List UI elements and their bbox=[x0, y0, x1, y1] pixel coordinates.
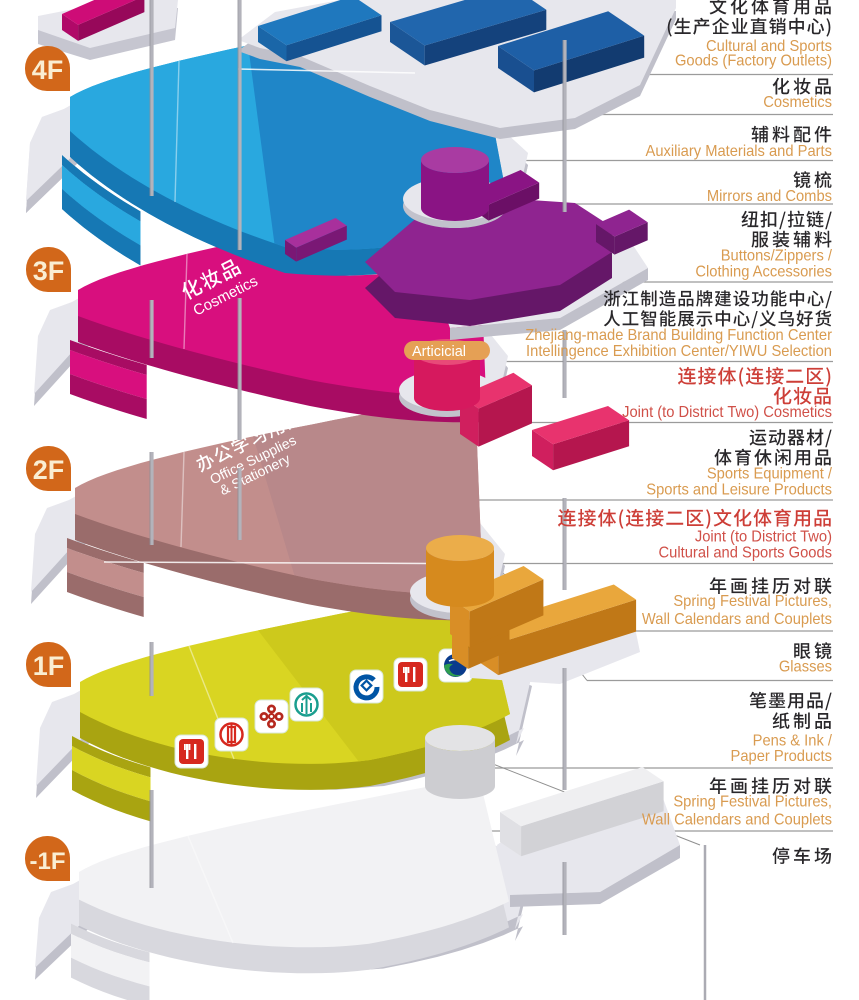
svg-text:Zhejiang-made Brand Building F: Zhejiang-made Brand Building Function Ce… bbox=[525, 327, 832, 344]
svg-text:Spring Festival Pictures,: Spring Festival Pictures, bbox=[673, 593, 832, 610]
svg-text:Intellingence Exhibition Cente: Intellingence Exhibition Center/YIWU Sel… bbox=[526, 343, 832, 360]
svg-text:Sports Equipment /: Sports Equipment / bbox=[707, 465, 833, 482]
svg-text:Articicial: Articicial bbox=[412, 344, 466, 360]
svg-text:Clothing Accessories: Clothing Accessories bbox=[695, 263, 832, 280]
svg-text:-1F: -1F bbox=[30, 848, 66, 875]
svg-text:2F: 2F bbox=[33, 455, 65, 485]
svg-text:Paper Products: Paper Products bbox=[731, 748, 833, 765]
svg-text:Spring Festival Pictures,: Spring Festival Pictures, bbox=[673, 793, 832, 810]
svg-text:1F: 1F bbox=[33, 651, 65, 681]
svg-text:4F: 4F bbox=[32, 55, 64, 85]
svg-text:Sports and Leisure Products: Sports and Leisure Products bbox=[646, 481, 832, 498]
svg-text:Cultural and Sports Goods: Cultural and Sports Goods bbox=[659, 544, 833, 561]
svg-text:Glasses: Glasses bbox=[779, 658, 833, 675]
svg-text:Joint (to District Two): Joint (to District Two) bbox=[695, 528, 832, 545]
svg-text:Goods (Factory Outlets): Goods (Factory Outlets) bbox=[675, 52, 832, 69]
svg-text:Joint (to District Two) Cosmet: Joint (to District Two) Cosmetics bbox=[622, 404, 832, 421]
svg-text:Wall Calendars and Couplets: Wall Calendars and Couplets bbox=[642, 811, 832, 828]
svg-text:3F: 3F bbox=[33, 256, 65, 286]
svg-text:Cosmetics: Cosmetics bbox=[763, 94, 832, 111]
svg-text:Auxiliary Materials and Parts: Auxiliary Materials and Parts bbox=[646, 143, 833, 160]
svg-text:Wall Calendars and Couplets: Wall Calendars and Couplets bbox=[642, 611, 832, 628]
svg-text:Buttons/Zippers /: Buttons/Zippers / bbox=[721, 247, 833, 264]
svg-text:Mirrors and Combs: Mirrors and Combs bbox=[707, 188, 833, 205]
